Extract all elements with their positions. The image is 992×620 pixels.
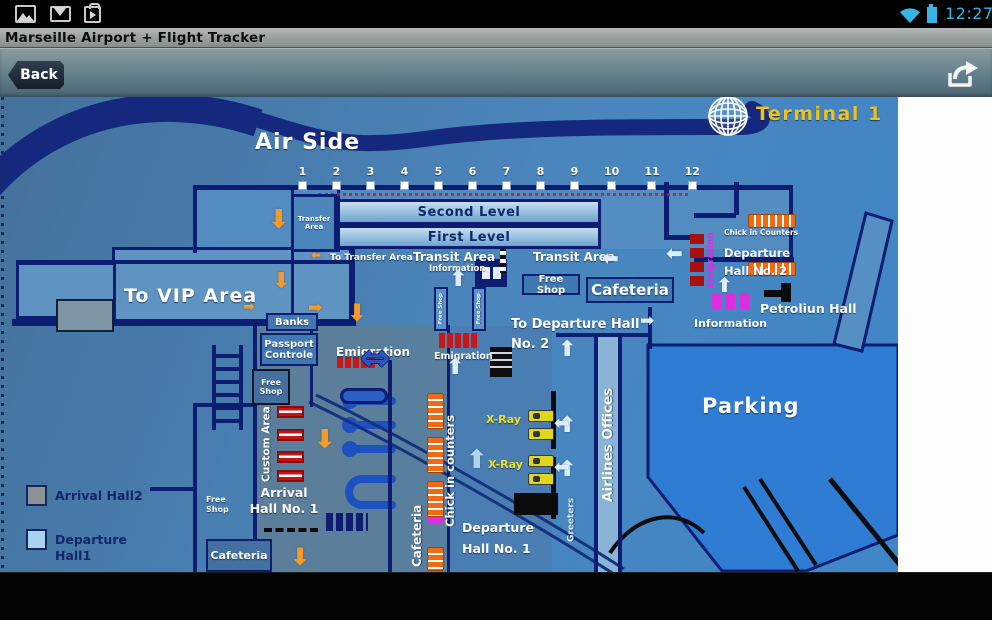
gate-dotted-line [318, 193, 688, 196]
to-transfer-area-label: To Transfer Area [330, 253, 413, 264]
terminal-map[interactable]: 1 2 3 4 5 6 7 8 9 10 11 12 Second Level … [0, 97, 898, 572]
down-arrow-icon: ⬇ [272, 271, 290, 293]
gallery-notification-icon [15, 5, 36, 23]
xray-machine-icon [528, 473, 554, 485]
gate-12: 12 [685, 165, 700, 190]
wall-segment [388, 360, 392, 572]
right-arrow-icon: ➡ [243, 300, 255, 314]
right-arrow-icon: ➡ [308, 300, 322, 317]
cafeteria-bottom-box: Cafeteria [206, 539, 272, 572]
left-arrow-icon: ⬅ [602, 248, 619, 268]
gate-4: 4 [400, 165, 409, 190]
legend-swatch-arrival [26, 485, 47, 506]
status-bar: 12:27 [0, 0, 992, 28]
android-screen: 12:27 Marseille Airport + Flight Tracker… [0, 0, 992, 620]
baggage-belt-block [277, 429, 304, 441]
wall-segment [734, 182, 739, 215]
cafeteria-vertical-label: Cafeteria [408, 497, 426, 572]
emigration-desk-block [439, 333, 445, 348]
gate-desk-block [740, 293, 749, 310]
ramp-road [834, 213, 892, 351]
emigration-desk-block [471, 333, 477, 348]
wall-segment [193, 185, 197, 253]
left-arrow-icon: ⬅ [554, 415, 569, 433]
gate-6: 6 [468, 165, 477, 190]
wall-segment [16, 260, 352, 264]
map-edge-dots [1, 97, 4, 572]
free-shop-box: Free Shop [522, 274, 580, 295]
gate-2: 2 [332, 165, 341, 190]
gate-8: 8 [536, 165, 545, 190]
fuel-pump-icon-head [781, 283, 791, 302]
emigration-desk-block [447, 333, 453, 348]
parking-region [648, 345, 898, 571]
free-shop-vertical-box: Free Shop [434, 287, 448, 331]
airside-road-curve [0, 108, 258, 195]
air-side-label: Air Side [255, 130, 360, 156]
emigration-desk-block [463, 333, 469, 348]
globe-icon [709, 97, 747, 135]
gate-10: 10 [604, 165, 619, 190]
walkway-desk [340, 388, 388, 404]
gate-square [502, 181, 511, 190]
xray-machine-icon [528, 428, 554, 440]
up-arrow-icon: ⬆ [449, 269, 467, 291]
navigation-bar [0, 572, 992, 620]
gate-9: 9 [570, 165, 579, 190]
play-store-notification-icon [84, 6, 101, 23]
vip-gray-room [56, 299, 114, 332]
gate-square [298, 181, 307, 190]
down-arrow-icon: ⬇ [290, 545, 310, 569]
information-label: Information [694, 317, 767, 330]
gate-3: 3 [366, 165, 375, 190]
petroliun-hall-label: Petroliun Hall [760, 301, 857, 316]
xray-machine-icon [528, 455, 554, 467]
battery-icon [927, 7, 937, 23]
to-vip-area-label: To VIP Area [124, 285, 257, 308]
checkin-counter-block [427, 547, 444, 571]
gate-square [607, 181, 616, 190]
chick-in-counters-vertical-label: Chick in counters [442, 411, 460, 531]
free-shop-left-box: FreeShop [252, 369, 290, 405]
right-arrow-icon: ➡ [640, 313, 654, 330]
status-clock: 12:27 [945, 4, 992, 23]
first-level-box: First Level [337, 225, 601, 249]
gate-square [468, 181, 477, 190]
elevator-pole-icon [500, 247, 506, 273]
counter-comb-structure [326, 513, 368, 531]
app-title: Marseille Airport + Flight Tracker [0, 30, 265, 46]
emigration-desk-block [690, 262, 704, 272]
emigration-desk-block [690, 248, 704, 258]
gate-square [400, 181, 409, 190]
action-bar: Back [0, 48, 992, 97]
checkin-counter-block [748, 214, 796, 228]
departure-hall-2-label: Departure Hall No. 2 [724, 244, 790, 281]
baggage-belt-block [277, 470, 304, 482]
custom-area-label: Custom Area [258, 401, 276, 487]
departure-hall-1-label: Departure Hall No. 1 [462, 517, 534, 560]
black-wall-segment [514, 493, 558, 515]
legend-departure-hall1-label: Departure Hall1 [55, 532, 137, 563]
xray-machine-icon [528, 410, 554, 422]
wifi-icon [899, 6, 921, 24]
free-shop-small-label: Free Shop [206, 495, 229, 516]
gate-square [570, 181, 579, 190]
escalator-icon [490, 347, 512, 377]
up-arrow-icon: ⬆ [716, 275, 733, 295]
greeters-label: Greeters [564, 491, 580, 549]
chick-in-counters-top-label: Chick in Counters [724, 228, 798, 237]
legend-swatch-departure [26, 529, 47, 550]
emigration-desk-block [455, 333, 461, 348]
emigration-desk-block [690, 276, 704, 286]
x-ray-label-2: X-Ray [488, 458, 523, 471]
gate-desk-block [428, 517, 443, 523]
stairs-structure [212, 345, 243, 430]
left-arrow-icon: ⬅ [666, 243, 683, 263]
gate-numbers-row: 1 2 3 4 5 6 7 8 9 10 11 12 [298, 165, 700, 190]
down-arrow-icon: ⬇ [347, 301, 367, 325]
second-level-box: Second Level [337, 199, 601, 225]
free-shop-vertical-box: Free Shop [472, 287, 486, 331]
arrival-hall-1-label: Arrival Hall No. 1 [240, 485, 328, 518]
up-arrow-icon: ⬆ [558, 339, 576, 361]
baggage-belt-block [277, 451, 304, 463]
double-arrow-icon: ⇔ [360, 341, 390, 377]
left-arrow-icon: ⬅ [554, 459, 569, 477]
gate-5: 5 [434, 165, 443, 190]
wall-segment [664, 182, 669, 239]
gmail-notification-icon [50, 6, 71, 22]
transit-area-label: Transit Area [413, 250, 495, 264]
gate-square [688, 181, 697, 190]
gate-square [434, 181, 443, 190]
back-button-label: Back [14, 67, 58, 83]
left-arrow-icon: ⬅ [311, 249, 321, 261]
content-gutter [898, 97, 992, 572]
parking-label: Parking [702, 394, 800, 419]
app-title-bar: Marseille Airport + Flight Tracker [0, 28, 992, 48]
dashed-door-line [264, 528, 318, 532]
gate-11: 11 [644, 165, 659, 190]
passport-controle-box: PassportControle [260, 333, 318, 366]
terminal-title: Terminal 1 [756, 103, 883, 126]
wall-segment [150, 487, 195, 491]
cafeteria-box: Cafeteria [586, 277, 674, 303]
wall-segment [694, 213, 736, 218]
baggage-belt-block [277, 406, 304, 418]
x-ray-label: X-Ray [486, 413, 521, 426]
share-button[interactable] [942, 60, 982, 90]
legend-arrival-hall2-label: Arrival Hall2 [55, 488, 143, 503]
gate-square [647, 181, 656, 190]
gate-7: 7 [502, 165, 511, 190]
back-button[interactable]: Back [8, 61, 64, 89]
gate-square [536, 181, 545, 190]
wall-segment [253, 319, 257, 572]
transfer-area-box: Transfer Area [291, 194, 337, 252]
gate-1: 1 [298, 165, 307, 190]
emigration-desk-block [690, 234, 704, 244]
gate-square [332, 181, 341, 190]
down-arrow-icon: ⬇ [268, 207, 290, 233]
up-arrow-icon: ⬆ [466, 447, 488, 473]
share-icon [942, 60, 982, 90]
down-arrow-icon: ⬇ [314, 427, 336, 453]
up-arrow-icon: ⬆ [446, 357, 464, 379]
gate-square [366, 181, 375, 190]
airlines-offices-label: Airlines Offices [596, 355, 620, 535]
